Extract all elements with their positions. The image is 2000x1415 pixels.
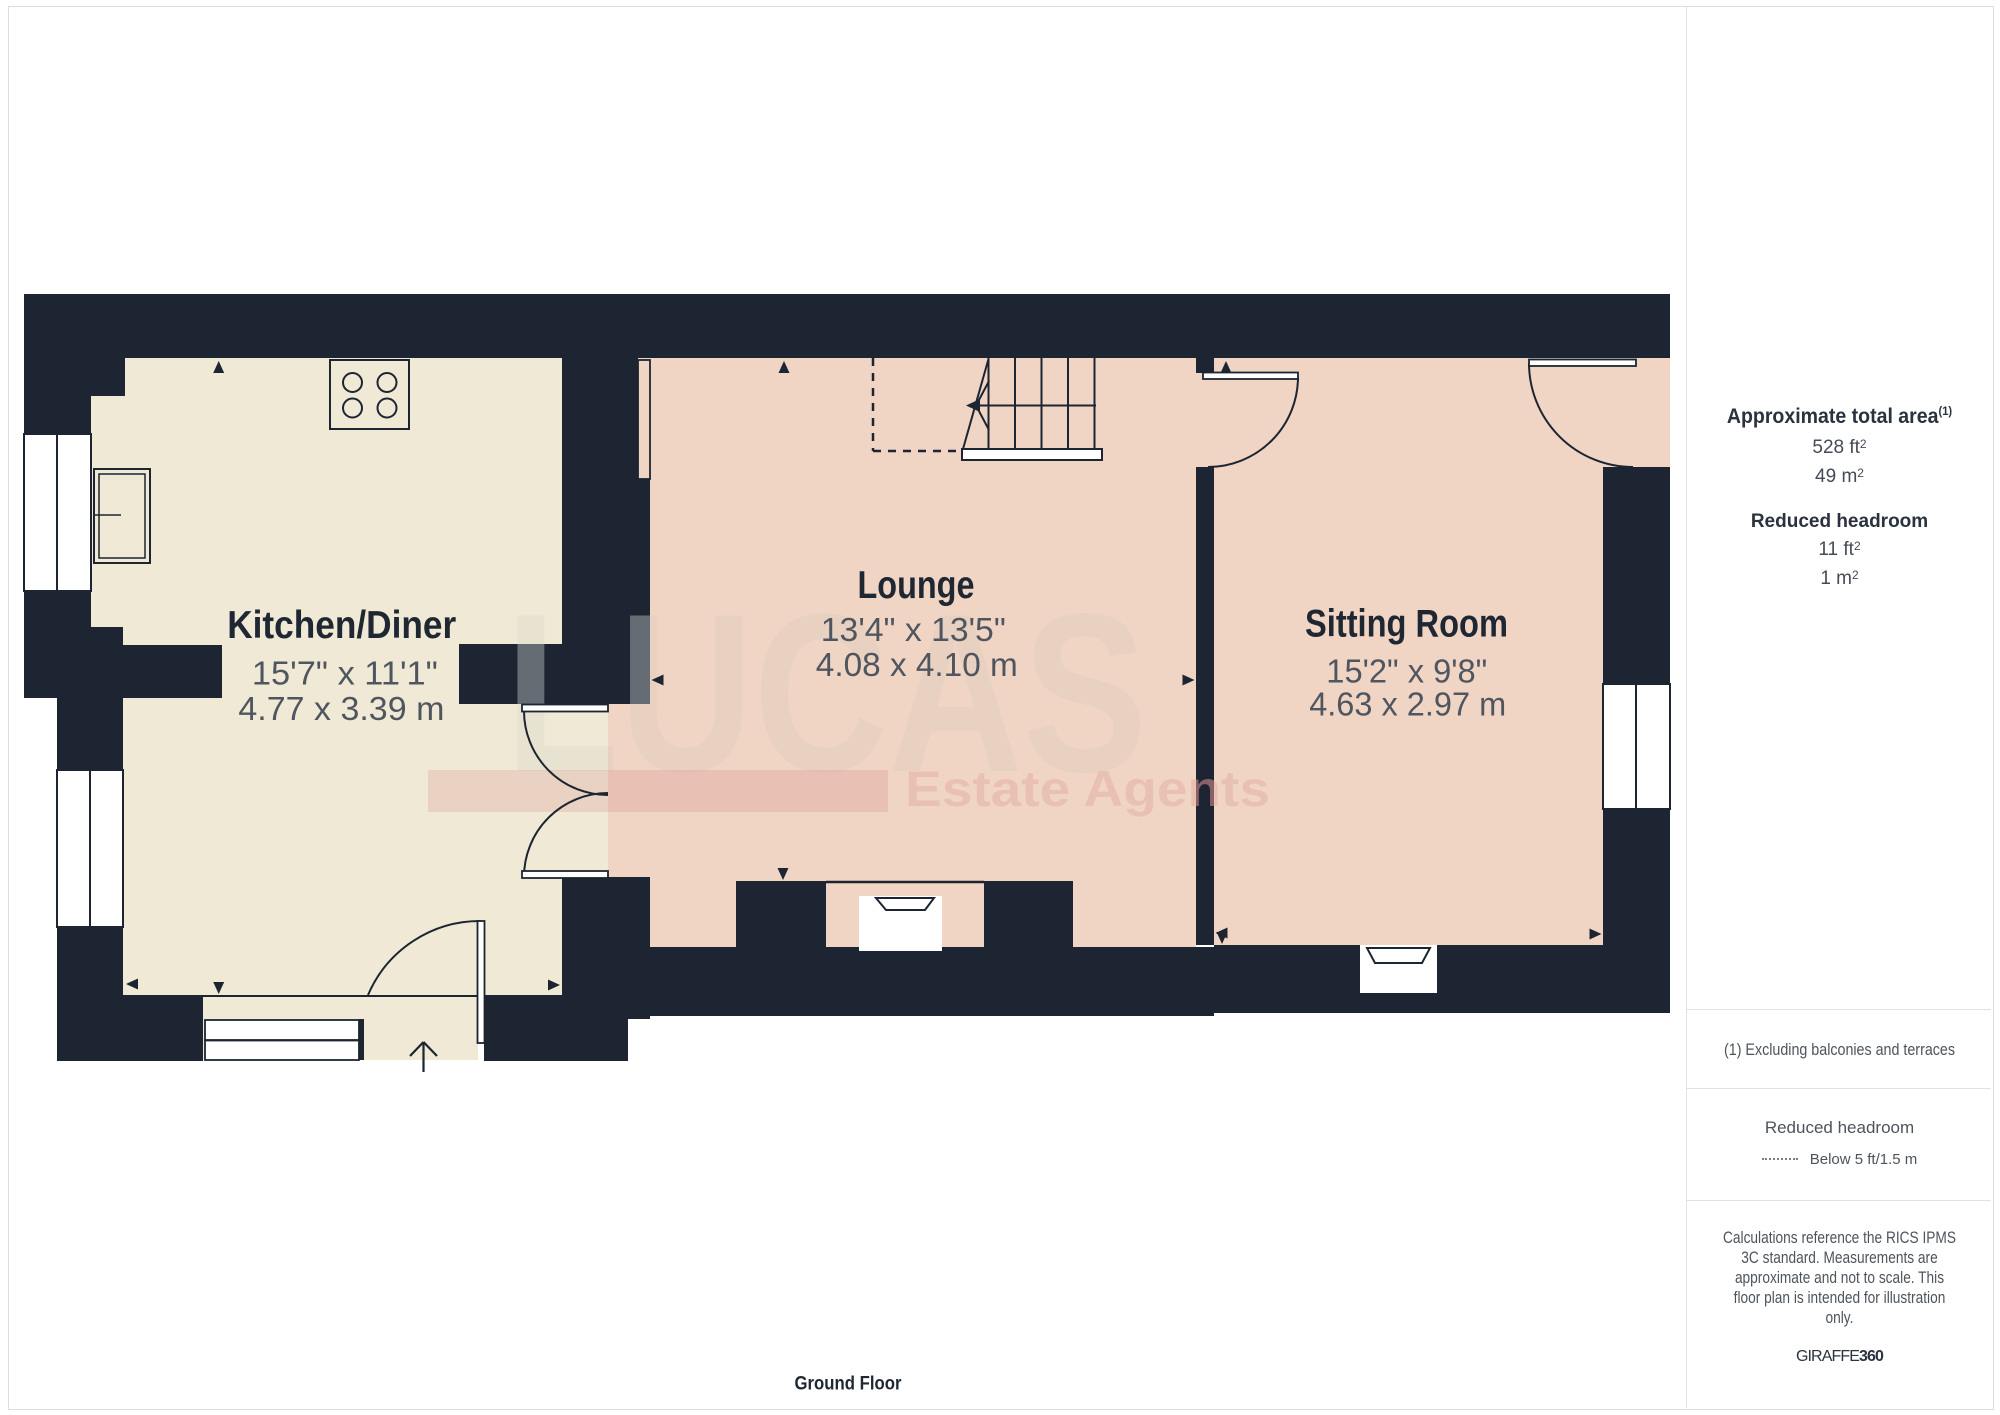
svg-text:4.63 x 2.97 m: 4.63 x 2.97 m: [1309, 687, 1506, 724]
svg-text:Sitting Room: Sitting Room: [1305, 603, 1508, 646]
svg-text:4.77 x 3.39 m: 4.77 x 3.39 m: [238, 691, 444, 728]
svg-text:Ground Floor: Ground Floor: [795, 1373, 902, 1395]
svg-text:Estate Agents: Estate Agents: [905, 761, 1270, 817]
svg-text:4.08 x 4.10 m: 4.08 x 4.10 m: [816, 647, 1018, 684]
svg-text:Lounge: Lounge: [858, 564, 975, 607]
svg-text:13'4" x 13'5": 13'4" x 13'5": [821, 612, 1006, 649]
svg-text:15'7" x 11'1": 15'7" x 11'1": [252, 656, 438, 693]
svg-text:15'2" x 9'8": 15'2" x 9'8": [1326, 654, 1487, 691]
svg-text:Kitchen/Diner: Kitchen/Diner: [227, 604, 456, 647]
